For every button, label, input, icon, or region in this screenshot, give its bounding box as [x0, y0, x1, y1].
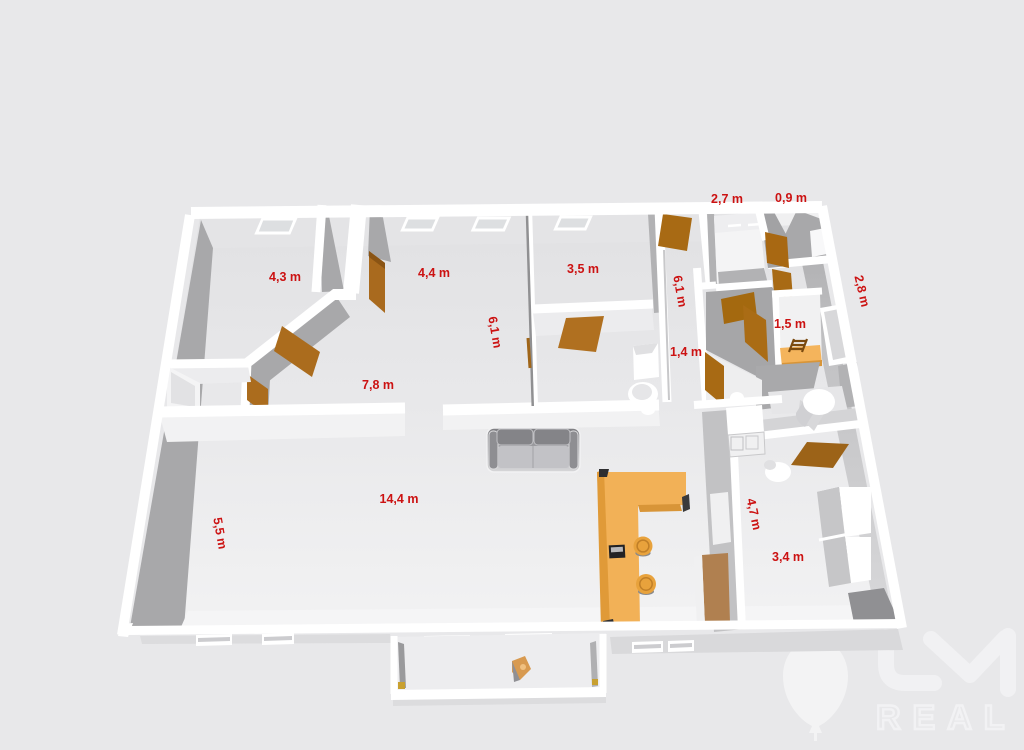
svg-text:2,7 m: 2,7 m — [711, 192, 743, 206]
svg-text:1,5 m: 1,5 m — [774, 317, 806, 331]
svg-text:1,4 m: 1,4 m — [670, 345, 702, 359]
svg-text:14,4 m: 14,4 m — [380, 492, 419, 506]
svg-text:4,4 m: 4,4 m — [418, 266, 450, 280]
svg-text:7,8 m: 7,8 m — [362, 378, 394, 392]
svg-text:4,3 m: 4,3 m — [269, 270, 301, 284]
svg-text:REAL: REAL — [876, 699, 1017, 737]
svg-text:3,5 m: 3,5 m — [567, 262, 599, 276]
svg-text:3,4 m: 3,4 m — [772, 550, 804, 564]
svg-text:0,9 m: 0,9 m — [775, 191, 807, 205]
